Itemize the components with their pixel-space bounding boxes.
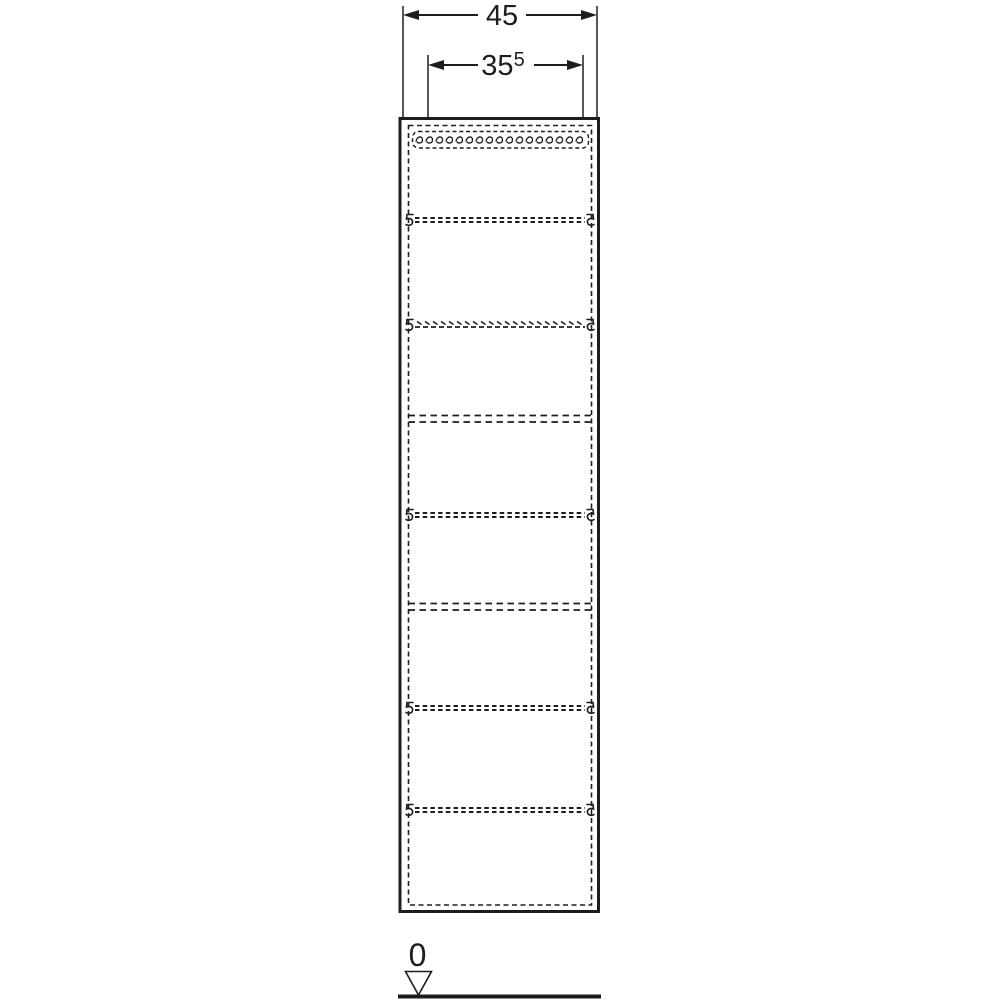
arrowhead-right-icon [567, 60, 583, 70]
cabinet-outline [400, 119, 599, 912]
drawing-svg: 45 355 [0, 0, 1000, 1000]
triangle-down-icon [406, 972, 432, 996]
arrowhead-left-icon [428, 60, 444, 70]
arrowhead-left-icon [403, 10, 419, 20]
dimension-outer-width-label: 45 [486, 0, 518, 32]
dimension-inner-width-label: 355 [481, 49, 524, 82]
floor-level-marker: 0 [398, 937, 601, 997]
floor-level-label: 0 [409, 937, 427, 973]
arrowhead-right-icon [581, 10, 597, 20]
dimension-drawing: 45 355 [0, 0, 1000, 1000]
